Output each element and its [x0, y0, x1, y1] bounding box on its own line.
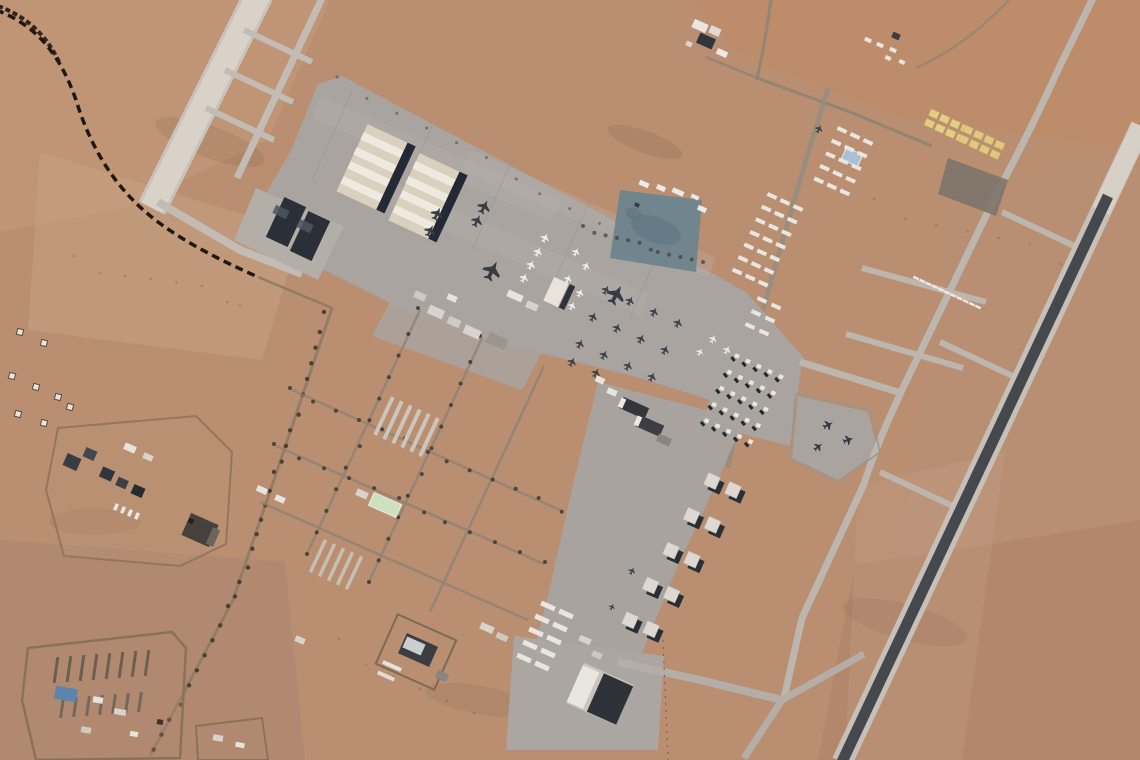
desert-bunker	[32, 383, 39, 390]
satellite-image	[0, 0, 1140, 760]
desert-bunker	[40, 339, 47, 346]
desert-bunker	[54, 393, 61, 400]
southwest-compound	[22, 632, 186, 760]
desert-bunker	[40, 419, 47, 426]
desert-bunker	[16, 328, 23, 335]
building-dark	[157, 719, 164, 725]
desert-bunker	[66, 403, 73, 410]
airbase-satellite-view	[0, 0, 1140, 760]
desert-bunker	[14, 410, 21, 417]
desert-bunker	[8, 372, 15, 379]
